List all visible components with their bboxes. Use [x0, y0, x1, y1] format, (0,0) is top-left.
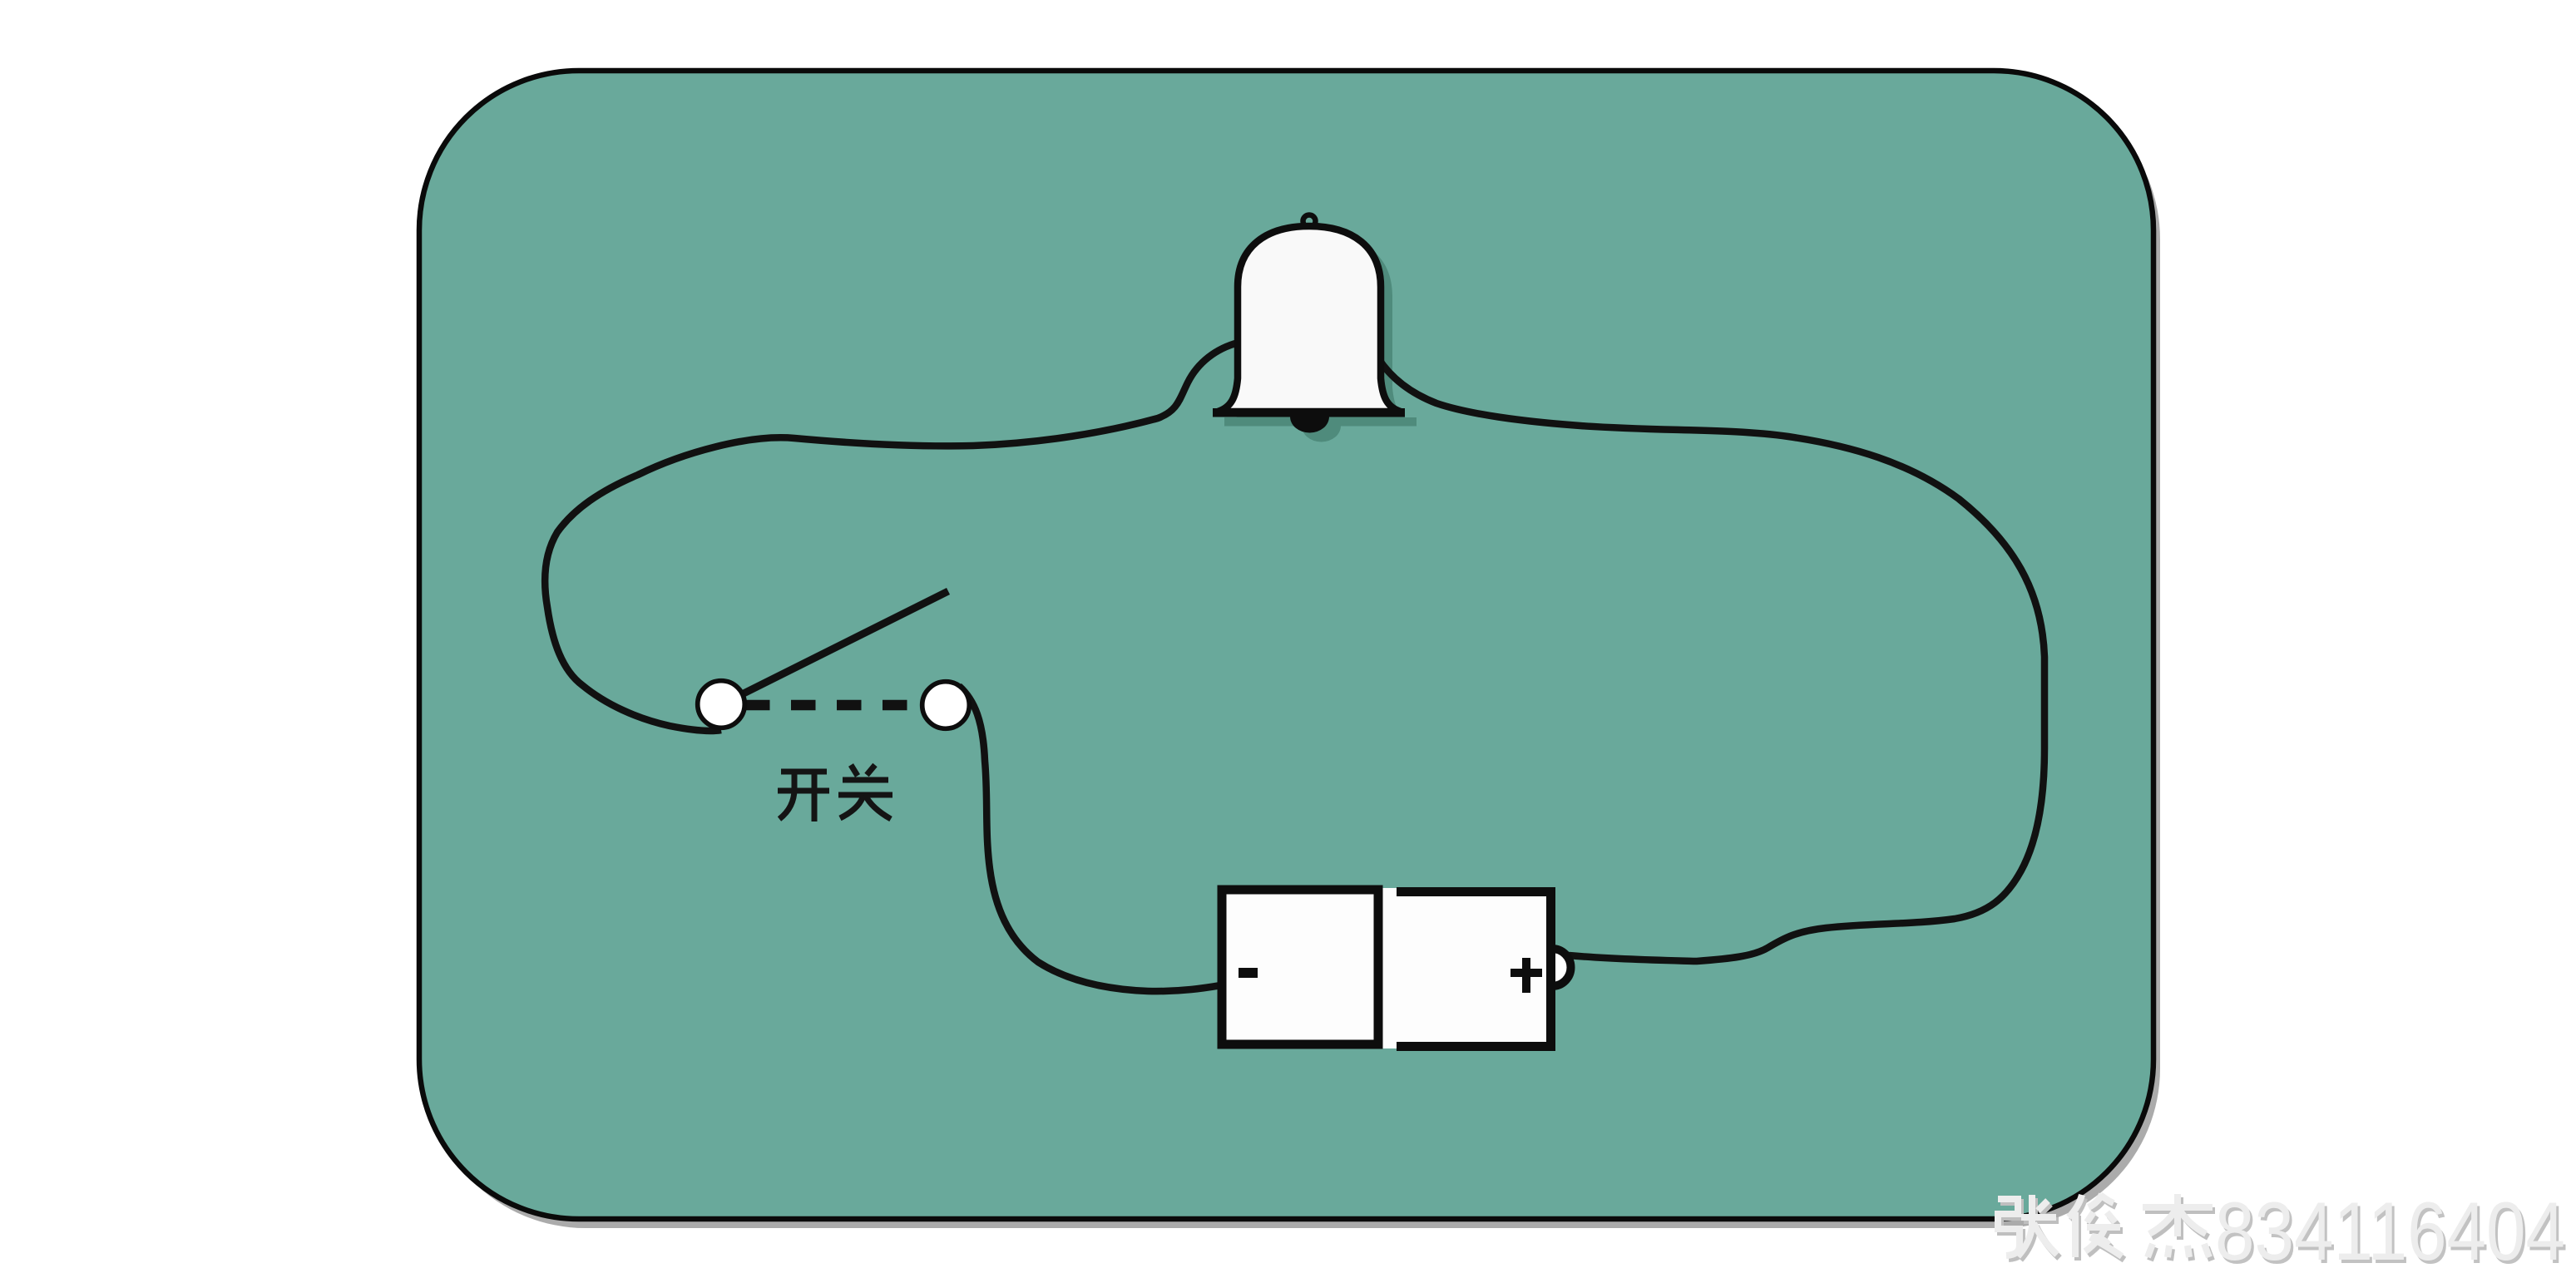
svg-text:834116404: 834116404 — [2215, 1185, 2565, 1268]
